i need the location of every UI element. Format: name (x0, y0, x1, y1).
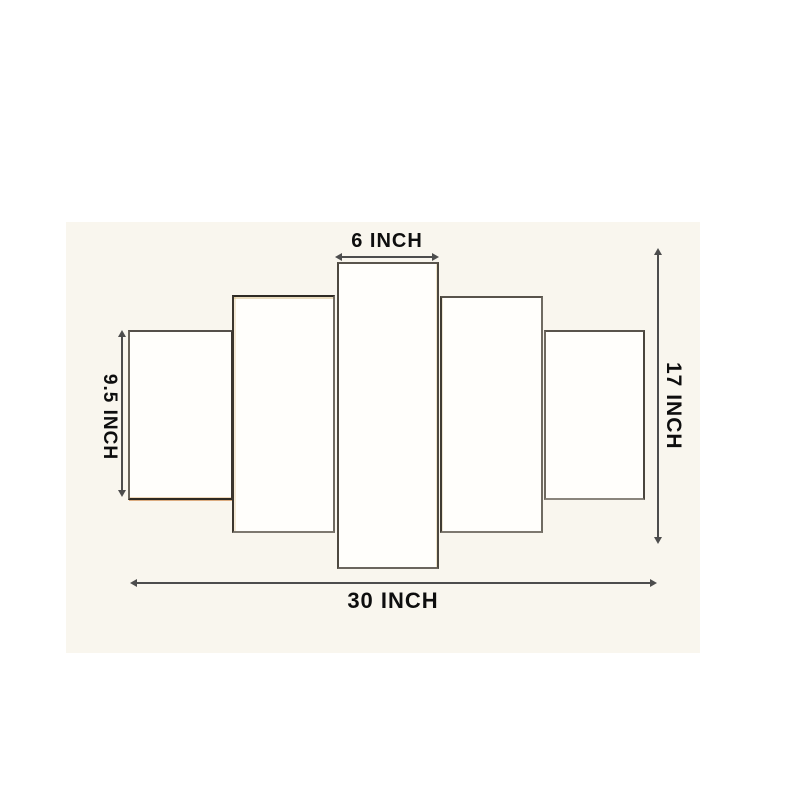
panel-mid-left (232, 295, 335, 533)
dimension-line-top (337, 256, 437, 258)
dimension-line-left (121, 332, 123, 495)
panel-center (337, 262, 439, 569)
dimension-label-overall-height: 17 INCH (662, 362, 684, 446)
panel-outer-right (544, 330, 645, 500)
dimension-label-outer-panel-height: 9.5 INCH (98, 370, 120, 464)
dimension-label-overall-width: 30 INCH (313, 590, 473, 612)
dimension-label-center-width: 6 INCH (327, 231, 447, 251)
panel-outer-left (128, 330, 233, 500)
dimension-line-bottom (132, 582, 655, 584)
dimension-line-right (657, 250, 659, 542)
dimension-diagram: 6 INCH 9.5 INCH 17 INCH 30 INCH (0, 0, 800, 800)
panel-mid-right (440, 296, 543, 533)
